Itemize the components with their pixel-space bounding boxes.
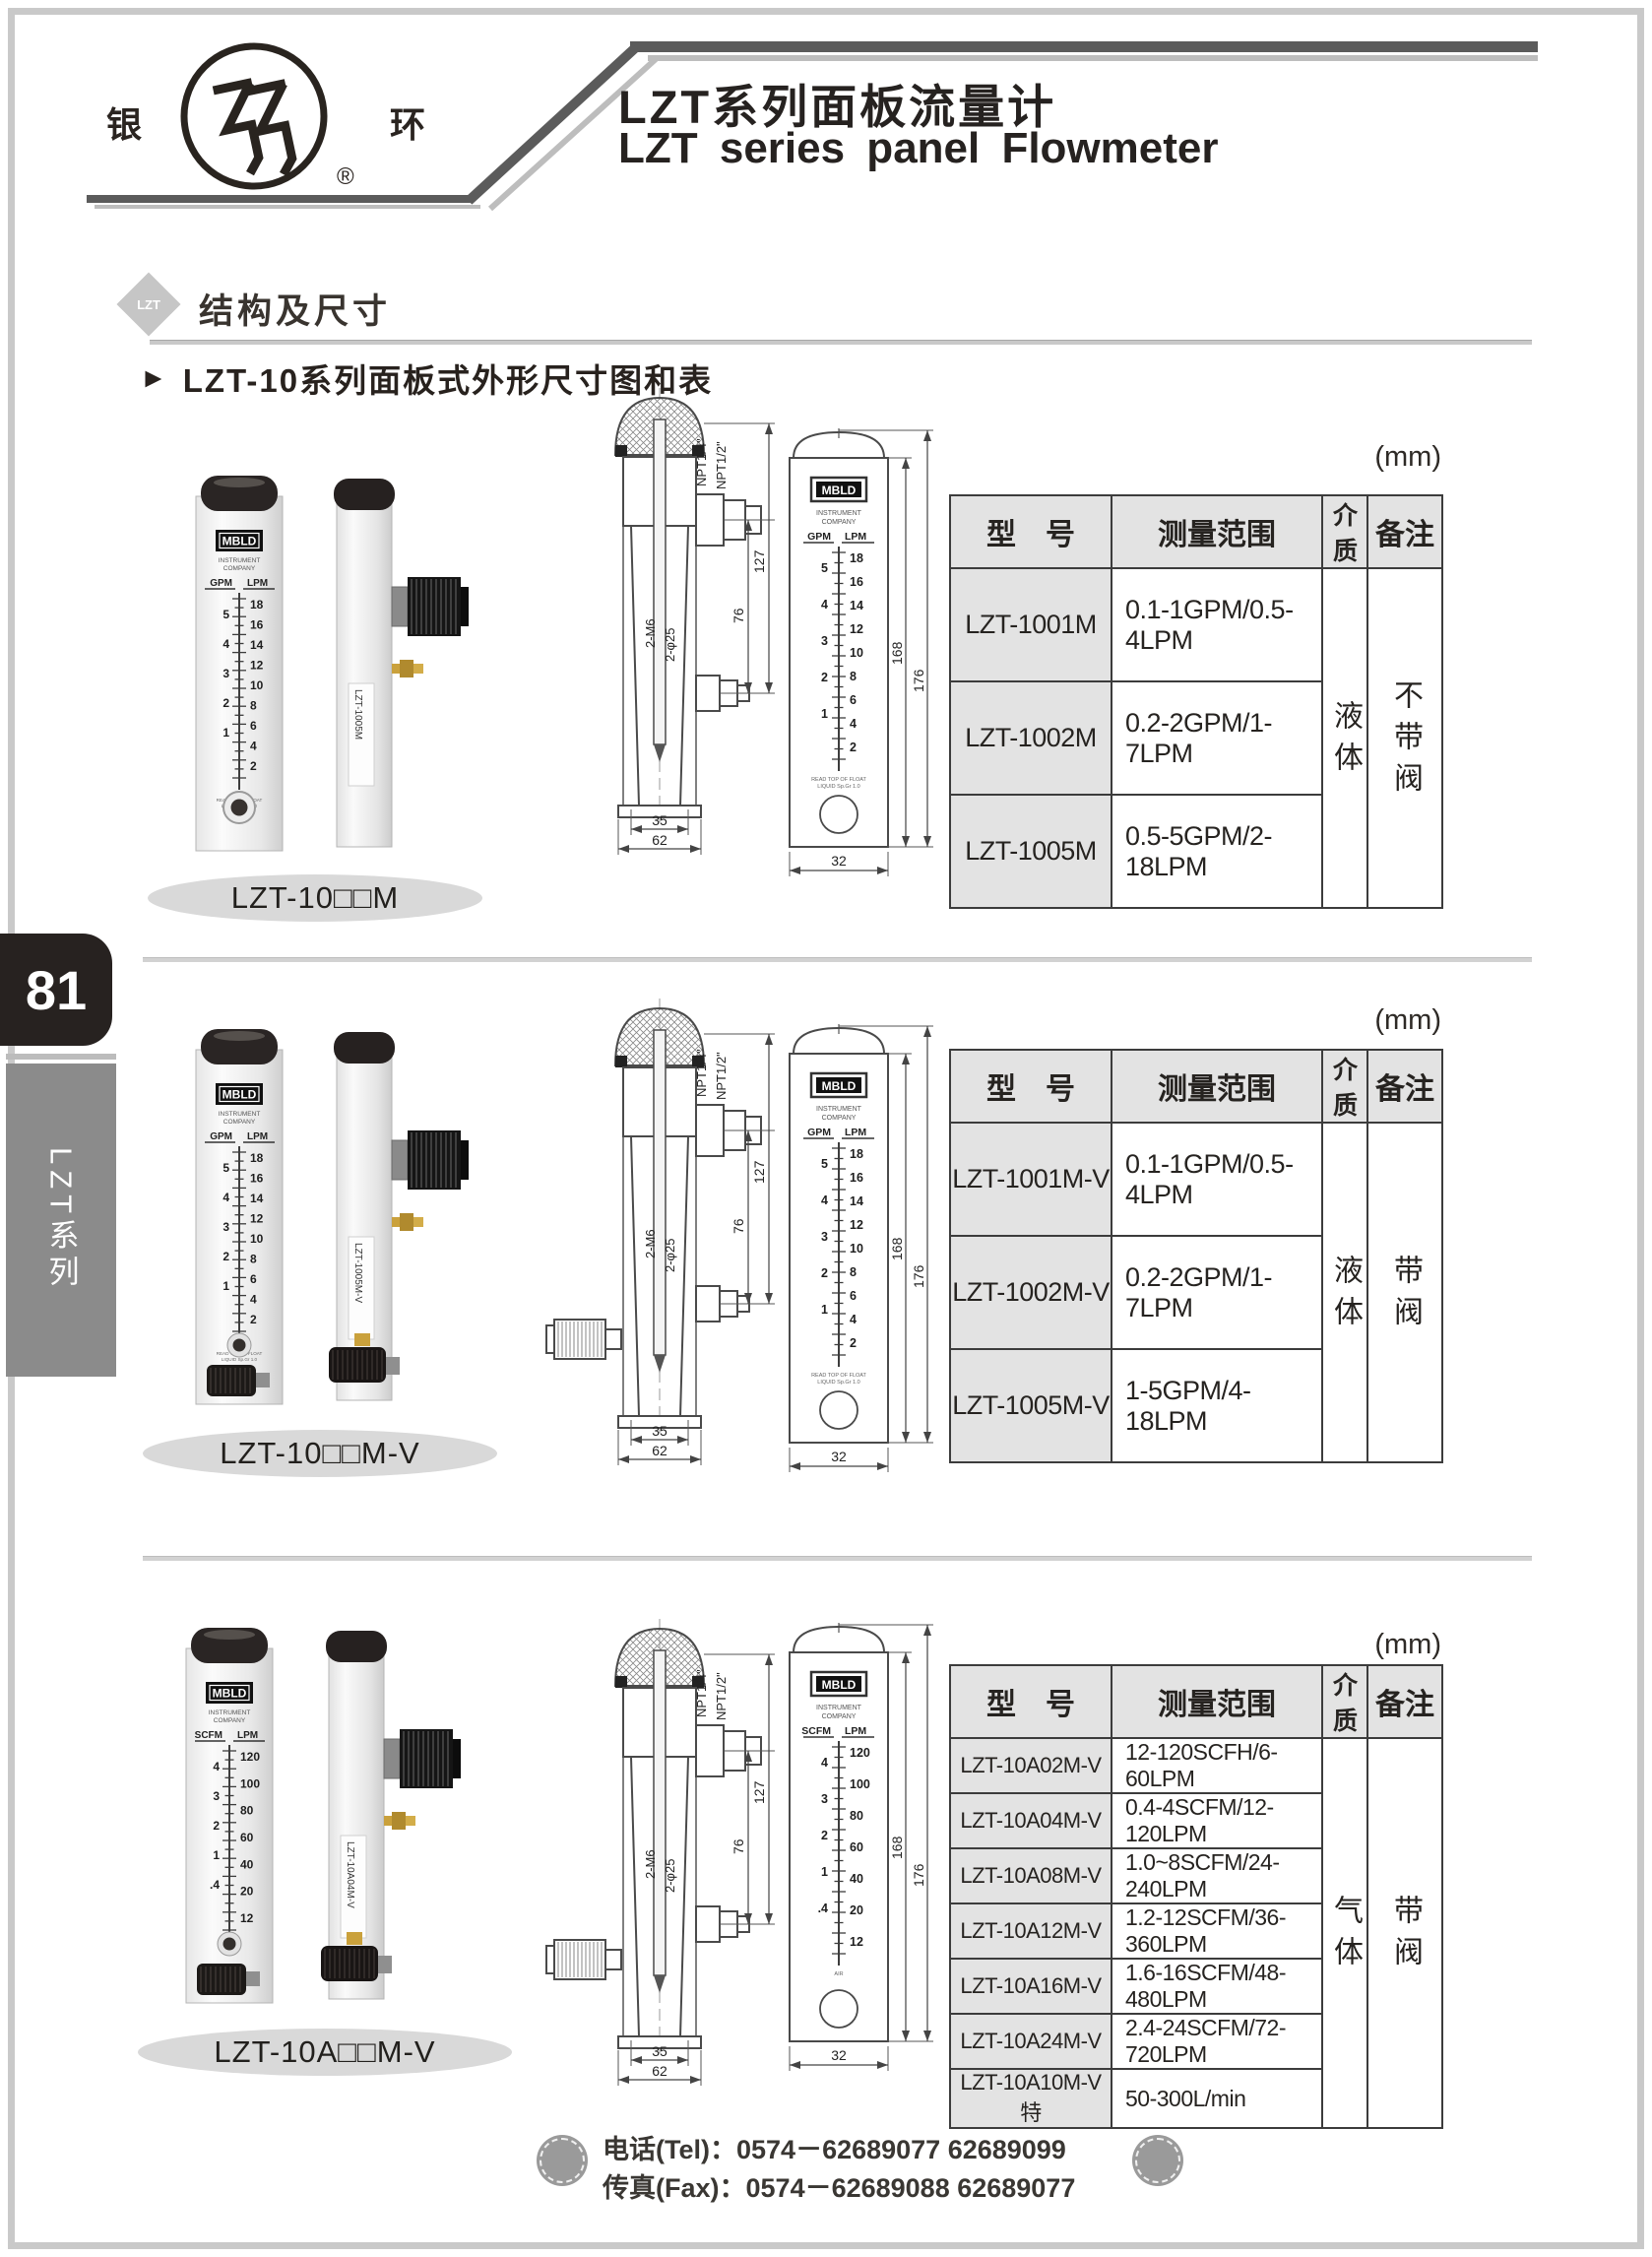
range-cell: 0.1-1GPM/0.5-4LPM [1112,1123,1322,1236]
svg-text:MBLD: MBLD [822,1678,857,1692]
svg-text:INSTRUMENT: INSTRUMENT [816,1705,862,1711]
brass-screw [392,1812,406,1830]
col-model: 型 号 [950,1050,1112,1123]
svg-text:4: 4 [821,1193,828,1207]
model-cell: LZT-10A08M-V [950,1848,1112,1903]
svg-text:18: 18 [850,1147,863,1161]
svg-text:80: 80 [240,1804,254,1818]
svg-text:3: 3 [222,1220,229,1234]
note-cell: 不带阀 [1367,568,1442,908]
svg-text:10: 10 [850,646,863,660]
svg-text:4: 4 [850,717,857,731]
footer-fax: 传真(Fax)：0574－62689088 62689077 [603,2169,1154,2208]
svg-text:INSTRUMENT: INSTRUMENT [209,1709,251,1716]
svg-text:40: 40 [240,1857,254,1871]
svg-text:INSTRUMENT: INSTRUMENT [816,510,862,517]
svg-text:MBLD: MBLD [822,1079,857,1093]
svg-text:LPM: LPM [247,578,268,589]
product-photo-front: MBLD INSTRUMENT COMPANY GPM LPM 54321181… [193,1024,286,1413]
svg-text:20: 20 [240,1885,254,1899]
logo-left-char: 银 [106,97,142,148]
range-cell: 1-5GPM/4-18LPM [1112,1349,1322,1462]
svg-text:COMPANY: COMPANY [223,565,256,572]
svg-text:4: 4 [850,1313,857,1326]
svg-text:MBLD: MBLD [222,1088,257,1102]
svg-text:5: 5 [821,561,828,575]
dim-32: 32 [831,2047,847,2063]
spec-table: 型 号测量范围介质备注LZT-10A02M-V12-120SCFH/6-60LP… [949,1664,1443,2129]
dim-hole: 2-φ25 [663,1859,677,1893]
model-cell: LZT-1001M-V [950,1123,1112,1236]
svg-text:AIR: AIR [834,1971,843,1977]
svg-text:3: 3 [821,1792,828,1806]
svg-text:1: 1 [213,1848,220,1862]
model-caption: LZT-10□□M [148,874,482,922]
table-header-row: 型 号测量范围介质备注 [950,1050,1442,1123]
brand-logo-icon [165,28,343,205]
svg-text:8: 8 [850,1265,857,1279]
svg-text:16: 16 [250,618,264,632]
svg-text:10: 10 [250,678,264,692]
dim-168: 168 [889,641,905,665]
svg-text:8: 8 [850,670,857,683]
svg-text:12: 12 [250,659,264,673]
dim-npt-large: NPT1/2" [714,1672,729,1720]
svg-text:2: 2 [821,1266,828,1280]
dim-thread: 2-M6 [643,1849,658,1879]
svg-text:12: 12 [240,1911,254,1925]
dimension-drawing: NPT1/4" NPT1/2" 2-M6 2-φ25 76 127 35 62 [537,995,783,1472]
svg-text:.4: .4 [210,1878,220,1892]
svg-text:40: 40 [850,1872,863,1886]
dim-35: 35 [652,1423,667,1439]
dim-176: 176 [911,669,926,692]
cap [326,1631,387,1662]
product-section-3: MBLD INSTRUMENT COMPANY SCFM LPM 4321.41… [0,1585,1652,2176]
col-model: 型 号 [950,495,1112,568]
svg-text:1: 1 [821,1303,828,1317]
model-cell: LZT-1001M [950,568,1112,681]
range-cell: 1.2-12SCFM/36-360LPM [1112,1903,1322,1959]
svg-text:3: 3 [213,1789,220,1803]
dim-62: 62 [652,2063,667,2079]
col-note: 备注 [1367,1050,1442,1123]
dim-76: 76 [731,1838,746,1854]
svg-text:LPM: LPM [845,1127,866,1138]
svg-text:1: 1 [821,1865,828,1879]
svg-text:GPM: GPM [210,1131,232,1142]
range-cell: 12-120SCFH/6-60LPM [1112,1738,1322,1793]
svg-text:60: 60 [850,1840,863,1854]
valve-knob [207,1365,256,1396]
cap [334,1032,395,1064]
svg-text:COMPANY: COMPANY [822,519,857,526]
range-cell: 0.2-2GPM/1-7LPM [1112,681,1322,795]
svg-text:LZT-1005M-V: LZT-1005M-V [352,1243,363,1303]
dim-127: 127 [751,549,767,573]
model-caption: LZT-10□□M-V [143,1430,497,1477]
svg-text:3: 3 [821,634,828,648]
svg-text:18: 18 [250,598,264,612]
svg-text:GPM: GPM [210,578,232,589]
svg-text:10: 10 [850,1242,863,1256]
svg-text:8: 8 [250,1253,257,1266]
valve-knob-drawing [546,1320,621,1359]
dim-176: 176 [911,1863,926,1887]
threaded-fitting [408,1130,461,1190]
svg-text:100: 100 [850,1777,870,1791]
svg-text:14: 14 [850,1194,863,1208]
svg-text:COMPANY: COMPANY [223,1119,256,1126]
upper-fitting [696,1725,724,1776]
svg-text:5: 5 [222,1161,229,1175]
threaded-fitting [408,577,461,636]
threaded-fitting [400,1729,453,1788]
catalog-page: 银 环 ® LZT系列面板流量计 LZT series panel Flowme… [0,0,1652,2257]
spec-table: 型 号测量范围介质备注LZT-1001M-V0.1-1GPM/0.5-4LPM液… [949,1049,1443,1463]
svg-text:LPM: LPM [237,1730,258,1741]
svg-text:2: 2 [222,696,229,710]
dim-35: 35 [652,812,667,828]
svg-text:1: 1 [222,726,229,740]
dim-62: 62 [652,832,667,848]
dim-168: 168 [889,1836,905,1859]
dim-hole: 2-φ25 [663,1239,677,1272]
svg-text:2: 2 [250,759,257,773]
section-rule [150,340,1532,345]
dim-127: 127 [751,1780,767,1804]
fitting-nut [392,587,408,626]
table-row: LZT-1001M-V0.1-1GPM/0.5-4LPM液体带阀 [950,1123,1442,1236]
dim-npt-large: NPT1/2" [714,1052,729,1100]
table-header-row: 型 号测量范围介质备注 [950,1665,1442,1738]
section-badge: LZT [122,278,175,331]
dim-thread: 2-M6 [643,618,658,648]
svg-text:6: 6 [250,1272,257,1286]
svg-text:120: 120 [850,1746,870,1760]
range-cell: 0.4-4SCFM/12-120LPM [1112,1793,1322,1848]
fitting-nut [392,1140,408,1180]
svg-text:6: 6 [850,693,857,707]
svg-text:80: 80 [850,1809,863,1823]
dim-npt-large: NPT1/2" [714,441,729,489]
range-cell: 1.6-16SCFM/48-480LPM [1112,1959,1322,2014]
svg-text:GPM: GPM [807,531,831,543]
col-medium: 介质 [1322,495,1367,568]
svg-text:16: 16 [850,575,863,589]
range-cell: 0.5-5GPM/2-18LPM [1112,795,1322,908]
float-rod [654,419,666,744]
svg-text:COMPANY: COMPANY [822,1115,857,1122]
page-title-en: LZT series panel Flowmeter [618,124,1219,173]
svg-text:3: 3 [821,1230,828,1244]
product-section-1: MBLD INSTRUMENT COMPANY GPM LPM 54321181… [0,384,1652,965]
dim-thread: 2-M6 [643,1229,658,1258]
model-caption: LZT-10A□□M-V [138,2029,512,2076]
svg-text:4: 4 [250,1293,257,1307]
dim-127: 127 [751,1160,767,1184]
svg-text:20: 20 [850,1903,863,1917]
valve-knob [197,1964,246,1995]
model-cell: LZT-10A04M-V [950,1793,1112,1848]
dim-62: 62 [652,1443,667,1458]
panel-front-drawing: MBLD INSTRUMENT COMPANY GPM LPM 54321181… [780,1024,952,1482]
upper-fitting [696,1105,724,1156]
float-rod [654,1030,666,1355]
col-model: 型 号 [950,1665,1112,1738]
model-cell: LZT-10A02M-V [950,1738,1112,1793]
col-note: 备注 [1367,1665,1442,1738]
svg-text:12: 12 [250,1212,264,1226]
note-cell: 带阀 [1367,1123,1442,1462]
brass-screw [400,1213,413,1231]
cap [334,479,395,510]
section-badge-label: LZT [122,278,175,331]
product-photo-front: MBLD INSTRUMENT COMPANY SCFM LPM 4321.41… [183,1623,276,2012]
unit-note: (mm) [1260,1004,1441,1037]
range-cell: 0.2-2GPM/1-7LPM [1112,1236,1322,1349]
svg-text:2: 2 [821,1829,828,1842]
section-separator [143,1556,1532,1561]
svg-text:120: 120 [240,1750,260,1764]
col-medium: 介质 [1322,1665,1367,1738]
col-note: 备注 [1367,495,1442,568]
svg-text:4: 4 [821,1756,828,1770]
svg-text:2: 2 [821,671,828,684]
col-range: 测量范围 [1112,1050,1322,1123]
svg-text:LIQUID Sp.Gr 1.0: LIQUID Sp.Gr 1.0 [222,1357,258,1362]
svg-text:1: 1 [222,1279,229,1293]
valve-knob-drawing [546,1940,621,1979]
product-photo-side: LZT-1005M [325,471,473,860]
svg-text:60: 60 [240,1831,254,1844]
svg-text:LZT-1005M: LZT-1005M [352,689,363,740]
footer-dot-right [1132,2135,1183,2186]
medium-cell: 液体 [1322,568,1367,908]
svg-text:LPM: LPM [845,531,866,543]
dim-168: 168 [889,1237,905,1260]
svg-text:LZT-10A04M-V: LZT-10A04M-V [345,1841,355,1908]
svg-text:.4: .4 [818,1902,828,1915]
dim-hole: 2-φ25 [663,628,677,662]
dimension-drawing: NPT1/4" NPT1/2" 2-M6 2-φ25 76 127 35 62 [537,384,783,862]
dim-32: 32 [831,853,847,869]
svg-text:12: 12 [850,1218,863,1232]
dim-176: 176 [911,1264,926,1288]
product-photo-side: LZT-10A04M-V [317,1623,465,2012]
svg-text:COMPANY: COMPANY [822,1713,857,1720]
svg-text:4: 4 [821,598,828,612]
dim-npt-small: NPT1/4" [694,1049,709,1097]
product-section-2: MBLD INSTRUMENT COMPANY GPM LPM 54321181… [0,985,1652,1576]
svg-text:4: 4 [250,740,257,753]
model-cell: LZT-10A24M-V [950,2014,1112,2069]
svg-text:LIQUID Sp.Gr 1.0: LIQUID Sp.Gr 1.0 [817,784,859,790]
lower-fitting [696,1906,720,1942]
svg-text:12: 12 [850,622,863,636]
lower-fitting [696,676,720,711]
range-cell: 0.1-1GPM/0.5-4LPM [1112,568,1322,681]
dimension-drawing: NPT1/4" NPT1/2" 2-M6 2-φ25 76 127 35 62 [537,1615,783,2093]
svg-text:14: 14 [250,638,264,652]
footer-tel: 电话(Tel)：0574－62689077 62689099 [603,2131,1154,2169]
model-cell: LZT-10A10M-V特 [950,2069,1112,2128]
dim-76: 76 [731,1218,746,1234]
panel-front-drawing: MBLD INSTRUMENT COMPANY GPM LPM 54321181… [780,428,952,886]
medium-cell: 液体 [1322,1123,1367,1462]
footer-contact: 电话(Tel)：0574－62689077 62689099 传真(Fax)：0… [603,2131,1154,2208]
range-cell: 50-300L/min [1112,2069,1322,2128]
svg-text:4: 4 [222,1191,229,1204]
model-cell: LZT-1005M [950,795,1112,908]
svg-text:SCFM: SCFM [801,1725,831,1737]
svg-text:INSTRUMENT: INSTRUMENT [219,557,261,564]
svg-text:INSTRUMENT: INSTRUMENT [816,1106,862,1113]
dim-76: 76 [731,608,746,623]
spec-table: 型 号测量范围介质备注LZT-1001M0.1-1GPM/0.5-4LPM液体不… [949,494,1443,909]
svg-text:2: 2 [222,1250,229,1263]
svg-text:INSTRUMENT: INSTRUMENT [219,1111,261,1118]
svg-text:14: 14 [250,1192,264,1205]
svg-text:GPM: GPM [807,1127,831,1138]
registered-mark: ® [337,163,354,191]
svg-text:LIQUID Sp.Gr 1.0: LIQUID Sp.Gr 1.0 [817,1380,859,1386]
note-cell: 带阀 [1367,1738,1442,2128]
product-photo-front: MBLD INSTRUMENT COMPANY GPM LPM 54321181… [193,471,286,860]
svg-text:16: 16 [250,1172,264,1186]
footer-dot-left [537,2135,588,2186]
svg-text:READ TOP OF FLOAT: READ TOP OF FLOAT [811,1373,866,1379]
dim-32: 32 [831,1449,847,1464]
table-header-row: 型 号测量范围介质备注 [950,495,1442,568]
range-cell: 1.0~8SCFM/24-240LPM [1112,1848,1322,1903]
svg-text:2: 2 [250,1313,257,1326]
dim-35: 35 [652,2043,667,2059]
col-medium: 介质 [1322,1050,1367,1123]
dim-npt-small: NPT1/4" [694,438,709,486]
svg-text:READ TOP OF FLOAT: READ TOP OF FLOAT [811,777,866,783]
svg-text:LPM: LPM [247,1131,268,1142]
brass-screw [400,660,413,677]
svg-text:3: 3 [222,667,229,680]
svg-text:2: 2 [213,1819,220,1833]
svg-text:6: 6 [250,719,257,733]
svg-text:6: 6 [850,1289,857,1303]
float-rod [654,1650,666,1975]
section-separator [143,957,1532,962]
svg-text:10: 10 [250,1232,264,1246]
model-cell: LZT-10A12M-V [950,1903,1112,1959]
dim-npt-small: NPT1/4" [694,1669,709,1717]
svg-text:MBLD: MBLD [213,1687,247,1701]
svg-text:2: 2 [850,741,857,754]
svg-text:LPM: LPM [845,1725,866,1737]
range-cell: 2.4-24SCFM/72-720LPM [1112,2014,1322,2069]
svg-text:COMPANY: COMPANY [214,1717,246,1724]
unit-note: (mm) [1260,441,1441,474]
svg-text:MBLD: MBLD [822,484,857,497]
model-cell: LZT-1005M-V [950,1349,1112,1462]
svg-text:SCFM: SCFM [195,1730,222,1741]
svg-text:5: 5 [222,608,229,621]
svg-text:16: 16 [850,1171,863,1185]
svg-text:100: 100 [240,1776,260,1790]
svg-text:8: 8 [250,699,257,713]
col-range: 测量范围 [1112,1665,1322,1738]
section-title: 结构及尺寸 [199,284,391,334]
svg-text:18: 18 [250,1151,264,1165]
model-cell: LZT-1002M-V [950,1236,1112,1349]
panel-front-drawing: MBLD INSTRUMENT COMPANY SCFM LPM 4321.41… [780,1623,952,2081]
col-range: 测量范围 [1112,495,1322,568]
product-photo-side: LZT-1005M-V [325,1024,473,1413]
table-row: LZT-10A02M-V12-120SCFH/6-60LPM气体带阀 [950,1738,1442,1793]
upper-fitting [696,494,724,546]
logo-right-char: 环 [390,97,425,148]
model-cell: LZT-1002M [950,681,1112,795]
svg-text:5: 5 [821,1157,828,1171]
svg-text:12: 12 [850,1935,863,1949]
svg-text:2: 2 [850,1336,857,1350]
lower-fitting [696,1286,720,1322]
svg-text:18: 18 [850,551,863,565]
model-cell: LZT-10A16M-V [950,1959,1112,2014]
fitting-nut [384,1739,400,1778]
medium-cell: 气体 [1322,1738,1367,2128]
svg-text:4: 4 [213,1760,220,1773]
svg-text:MBLD: MBLD [222,535,257,548]
svg-text:4: 4 [222,637,229,651]
svg-text:14: 14 [850,599,863,613]
table-row: LZT-1001M0.1-1GPM/0.5-4LPM液体不带阀 [950,568,1442,681]
svg-text:1: 1 [821,707,828,721]
unit-note: (mm) [1260,1629,1441,1661]
